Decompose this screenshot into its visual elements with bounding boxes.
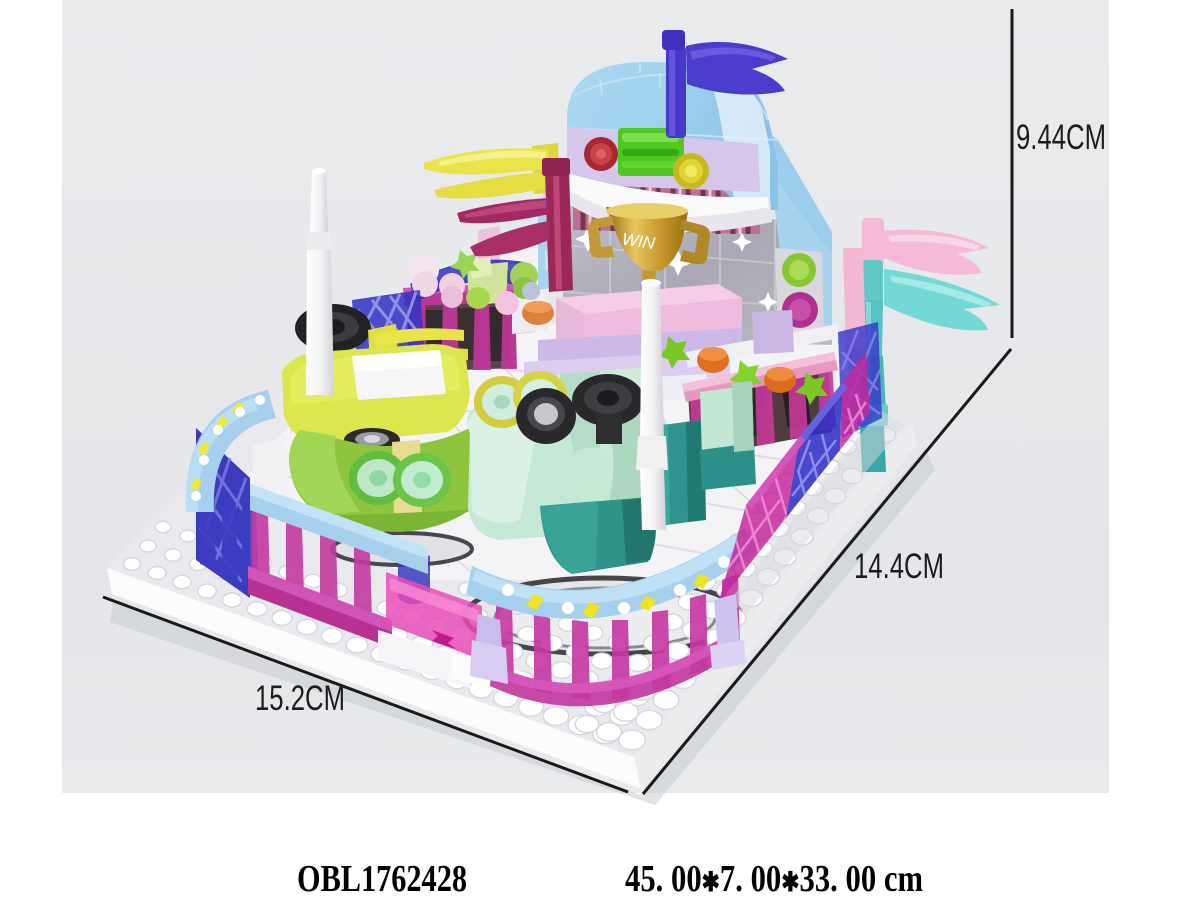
- svg-text:OBL1762428: OBL1762428: [297, 858, 467, 900]
- svg-text:15.2CM: 15.2CM: [255, 679, 345, 718]
- svg-text:9.44CM: 9.44CM: [1016, 118, 1106, 157]
- svg-text:14.4CM: 14.4CM: [854, 547, 944, 586]
- svg-text:45. 00✱7. 00✱33. 00 cm: 45. 00✱7. 00✱33. 00 cm: [625, 858, 923, 900]
